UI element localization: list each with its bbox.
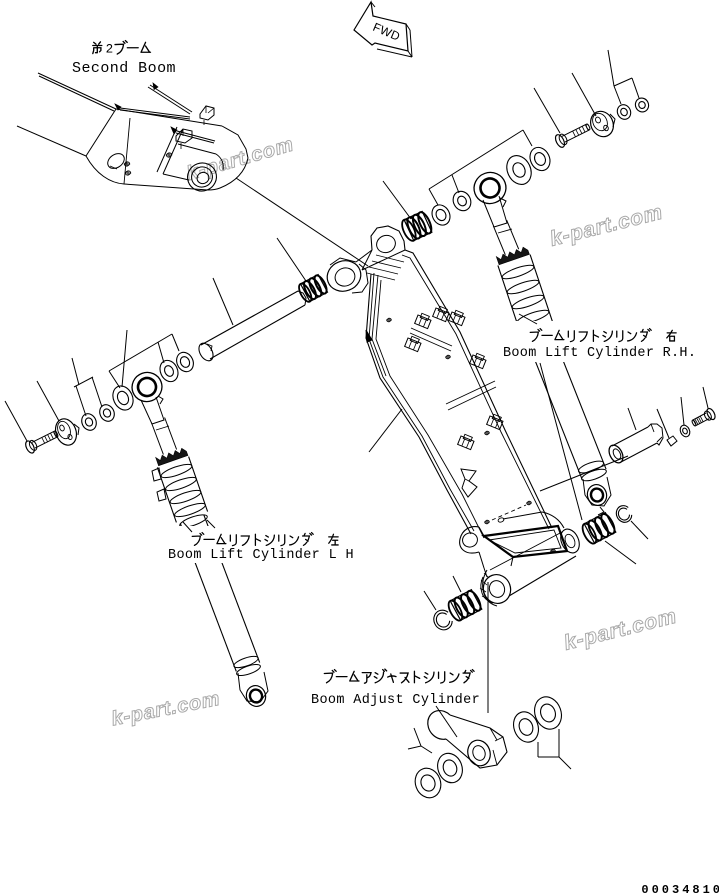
svg-text:Boom Lift Cylinder L H: Boom Lift Cylinder L H: [168, 548, 354, 563]
svg-text:00034810: 00034810: [641, 883, 719, 894]
svg-text:Boom Adjust Cylinder: Boom Adjust Cylinder: [311, 693, 480, 708]
svg-text:Second Boom: Second Boom: [72, 60, 176, 77]
svg-text:2: 2: [106, 43, 114, 57]
svg-text:Boom Lift Cylinder R.H.: Boom Lift Cylinder R.H.: [503, 346, 696, 361]
